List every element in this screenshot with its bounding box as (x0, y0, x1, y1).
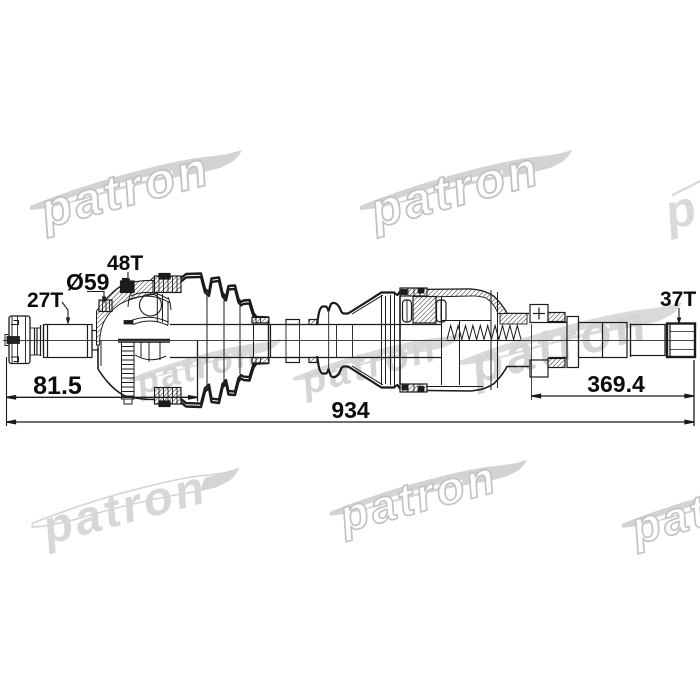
svg-text:369.4: 369.4 (587, 371, 645, 397)
svg-text:37T: 37T (660, 288, 696, 311)
svg-text:48T: 48T (107, 252, 143, 275)
svg-text:81.5: 81.5 (33, 372, 82, 400)
svg-text:27T: 27T (27, 289, 63, 312)
svg-text:Ø59: Ø59 (66, 269, 109, 295)
svg-text:934: 934 (331, 397, 370, 423)
